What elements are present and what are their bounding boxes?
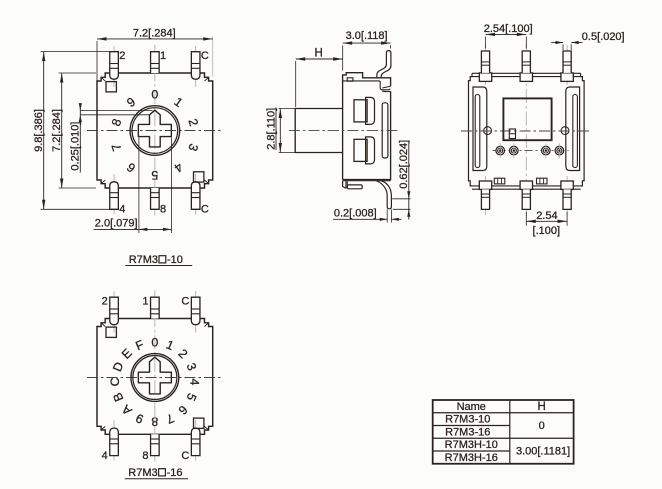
svg-text:8: 8 [151,415,158,429]
svg-text:2: 2 [119,50,125,62]
svg-text:R7M3: R7M3 [129,254,158,266]
svg-text:2.54: 2.54 [536,210,557,222]
svg-text:4: 4 [119,204,125,216]
svg-text:8: 8 [160,204,166,216]
svg-text:3.00[.1181]: 3.00[.1181] [516,446,570,458]
svg-text:R7M3H-16: R7M3H-16 [445,452,498,464]
svg-text:3.0[.118]: 3.0[.118] [346,30,388,42]
svg-text:R7M3-10: R7M3-10 [445,414,490,426]
svg-text:0: 0 [151,335,158,349]
svg-text:0.5[.020]: 0.5[.020] [582,31,625,43]
svg-text:R7M3: R7M3 [128,467,157,479]
svg-text:2.0[.079]: 2.0[.079] [95,217,138,229]
svg-text:-16: -16 [167,467,183,479]
svg-text:C: C [201,204,209,216]
svg-text:Name: Name [457,401,486,413]
svg-text:C: C [108,377,122,386]
svg-text:R7M3-16: R7M3-16 [445,426,490,438]
svg-text:0: 0 [151,88,158,102]
svg-text:H: H [314,48,322,60]
svg-text:5: 5 [151,168,158,182]
svg-text:R7M3H-10: R7M3H-10 [445,439,498,451]
svg-text:0.62[.024]: 0.62[.024] [398,140,410,189]
svg-text:1: 1 [160,50,166,62]
svg-text:C: C [181,450,189,462]
svg-text:1: 1 [142,296,148,308]
svg-text:C: C [181,296,189,308]
svg-text:8: 8 [142,450,148,462]
svg-text:0.25[.010]: 0.25[.010] [70,122,82,171]
svg-text:2.8[.110]: 2.8[.110] [266,108,278,150]
svg-text:H: H [538,401,546,413]
svg-text:9.8[.386]: 9.8[.386] [33,109,45,152]
svg-text:C: C [201,50,209,62]
svg-text:7.2[.284]: 7.2[.284] [133,27,176,39]
svg-text:2: 2 [102,296,108,308]
svg-text:-10: -10 [167,254,183,266]
svg-text:4: 4 [187,378,201,385]
svg-text:0.2[.008]: 0.2[.008] [334,207,377,219]
svg-text:[.100]: [.100] [533,225,561,237]
svg-text:2.54[.100]: 2.54[.100] [484,23,533,35]
svg-text:4: 4 [102,450,108,462]
svg-text:0: 0 [539,420,545,432]
svg-text:7.2[.284]: 7.2[.284] [51,109,63,152]
